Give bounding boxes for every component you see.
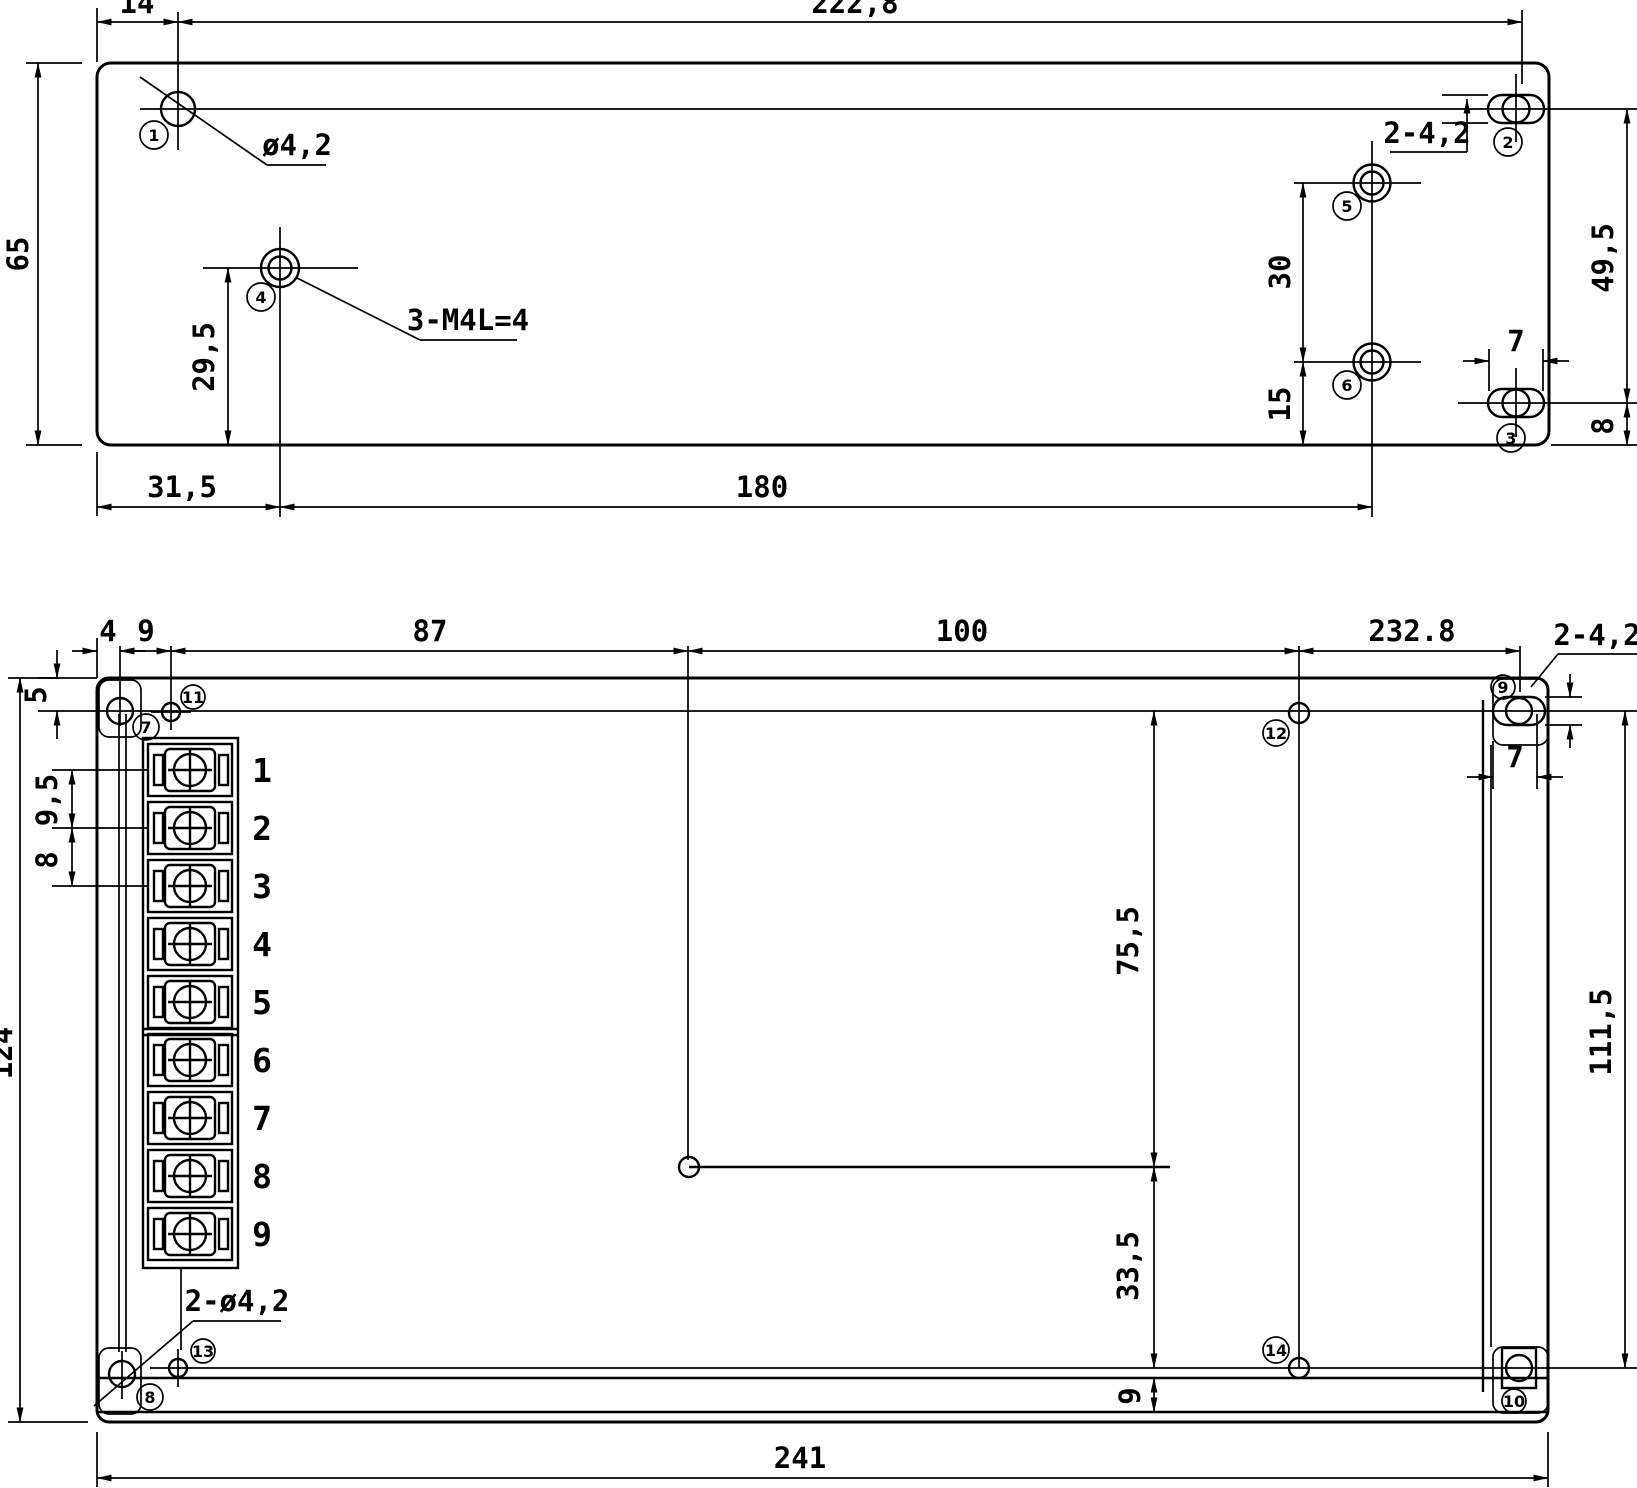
dim-8-bottom-label: 8 (30, 851, 64, 868)
dim-100-label: 100 (936, 614, 988, 648)
terminal-label-8: 8 (252, 1157, 272, 1196)
dim-4-label: 4 (99, 614, 116, 648)
hole-7: 7 (99, 646, 159, 740)
dim-222-8-label: 222,8 (811, 0, 898, 20)
hole-5: 5 (1294, 165, 1421, 221)
note-hole-dia-label: ø4,2 (262, 128, 332, 162)
terminal-label-4: 4 (252, 925, 272, 964)
dim-9-bottom: 9 (1113, 1378, 1154, 1412)
bottom-view-outline (97, 678, 1548, 1422)
terminal-cells (148, 744, 232, 1260)
hole-12: 12 (1263, 703, 1309, 746)
note-tapped-label: 3-M4L=4 (407, 303, 529, 337)
callout-2: 2 (1502, 133, 1513, 152)
dim-15: 15 (1263, 362, 1303, 445)
terminal-label-9: 9 (252, 1215, 272, 1254)
callout-12: 12 (1265, 724, 1287, 743)
dim-180-label: 180 (736, 470, 788, 504)
dim-29-5: 29,5 (187, 268, 228, 445)
top-view-outline (97, 63, 1549, 445)
callout-8: 8 (144, 1388, 155, 1407)
callout-9: 9 (1497, 678, 1508, 697)
dim-87-label: 87 (413, 614, 448, 648)
hole-11: 11 (151, 646, 205, 730)
callout-4: 4 (255, 288, 266, 307)
note-hole-dia: ø4,2 (140, 77, 332, 165)
dim-9-bottom-label: 9 (1113, 1387, 1147, 1404)
dim-31-5-label: 31,5 (147, 470, 217, 504)
dim-30-label: 30 (1263, 255, 1297, 290)
callout-14: 14 (1265, 1341, 1287, 1360)
callout-5: 5 (1341, 197, 1352, 216)
dim-7-bottom-label: 7 (1506, 740, 1523, 774)
top-view: 14 222,8 65 1 ø4,2 (1, 0, 1637, 517)
dim-9-5-label: 9,5 (30, 774, 64, 826)
terminal-block: 1 2 3 4 5 6 7 8 9 (119, 714, 272, 1352)
dim-111-5-label: 111,5 (1584, 988, 1618, 1075)
dim-241: 241 (97, 1432, 1548, 1487)
terminal-label-3: 3 (252, 867, 272, 906)
note-slots-top: 2-4,2 (1383, 99, 1470, 152)
dim-14: 14 (97, 0, 178, 62)
dim-75-5: 75,5 (1111, 711, 1154, 1167)
hole-10: 10 (1493, 1347, 1548, 1413)
drawing-canvas: 14 222,8 65 1 ø4,2 (0, 0, 1637, 1488)
callout-3: 3 (1505, 429, 1516, 448)
hole-1: 1 (140, 12, 195, 150)
bottom-view: 124 5 4 9 87 100 232.8 (0, 614, 1637, 1487)
center-hole (679, 1157, 1170, 1177)
dim-8-top: 8 (1551, 403, 1637, 445)
dim-30: 30 (1263, 183, 1303, 362)
callout-13: 13 (192, 1342, 214, 1361)
dim-232-8-label: 232.8 (1368, 614, 1455, 648)
dim-5: 5 (19, 650, 97, 739)
terminal-label-5: 5 (252, 983, 272, 1022)
dim-5-label: 5 (19, 686, 53, 703)
note-slots-top-label: 2-4,2 (1383, 116, 1470, 150)
corner-bracket-bottom-left (99, 1348, 141, 1414)
callout-6: 6 (1341, 376, 1352, 395)
callout-11: 11 (182, 688, 204, 707)
dim-31-5: 31,5 (97, 452, 280, 516)
note-tapped: 3-M4L=4 (297, 278, 529, 340)
callout-1: 1 (148, 126, 159, 145)
hole-4: 4 (203, 227, 358, 517)
terminal-label-2: 2 (252, 809, 272, 848)
dim-33-5-label: 33,5 (1111, 1231, 1145, 1301)
dim-222-8: 222,8 (178, 0, 1522, 84)
dim-33-5: 33,5 (1111, 1167, 1154, 1368)
dim-8-top-label: 8 (1586, 417, 1620, 434)
hole-8: 8 (99, 1348, 163, 1414)
callout-7: 7 (140, 718, 151, 737)
dim-180: 180 (280, 470, 1372, 507)
dim-65-label: 65 (1, 237, 35, 272)
dim-15-label: 15 (1263, 387, 1297, 422)
dim-49-5: 49,5 (1586, 109, 1627, 403)
dim-29-5-label: 29,5 (187, 322, 221, 392)
terminal-label-7: 7 (252, 1099, 272, 1138)
callout-10: 10 (1503, 1392, 1525, 1411)
note-slots-bottom-label: 2-4,2 (1553, 618, 1637, 652)
dim-65: 65 (1, 63, 82, 445)
dim-49-5-label: 49,5 (1586, 223, 1620, 293)
dim-chain-top: 4 9 87 100 232.8 (72, 614, 1520, 1368)
dim-7-top-label: 7 (1507, 324, 1524, 358)
dim-9-label: 9 (137, 614, 154, 648)
hole-14: 14 (1263, 1337, 1309, 1378)
dim-124-label: 124 (0, 1027, 19, 1079)
dim-14-label: 14 (120, 0, 155, 20)
note-holes-bottom-label: 2-ø4,2 (185, 1284, 290, 1318)
dim-75-5-label: 75,5 (1111, 906, 1145, 976)
terminal-label-1: 1 (252, 751, 272, 790)
drawing-page: 14 222,8 65 1 ø4,2 (0, 0, 1637, 1488)
hole-13: 13 (169, 1339, 215, 1387)
terminal-label-6: 6 (252, 1041, 272, 1080)
dim-8-bottom: 8 (30, 828, 72, 886)
dim-111-5: 111,5 (1584, 711, 1625, 1368)
dim-241-label: 241 (774, 1441, 826, 1475)
